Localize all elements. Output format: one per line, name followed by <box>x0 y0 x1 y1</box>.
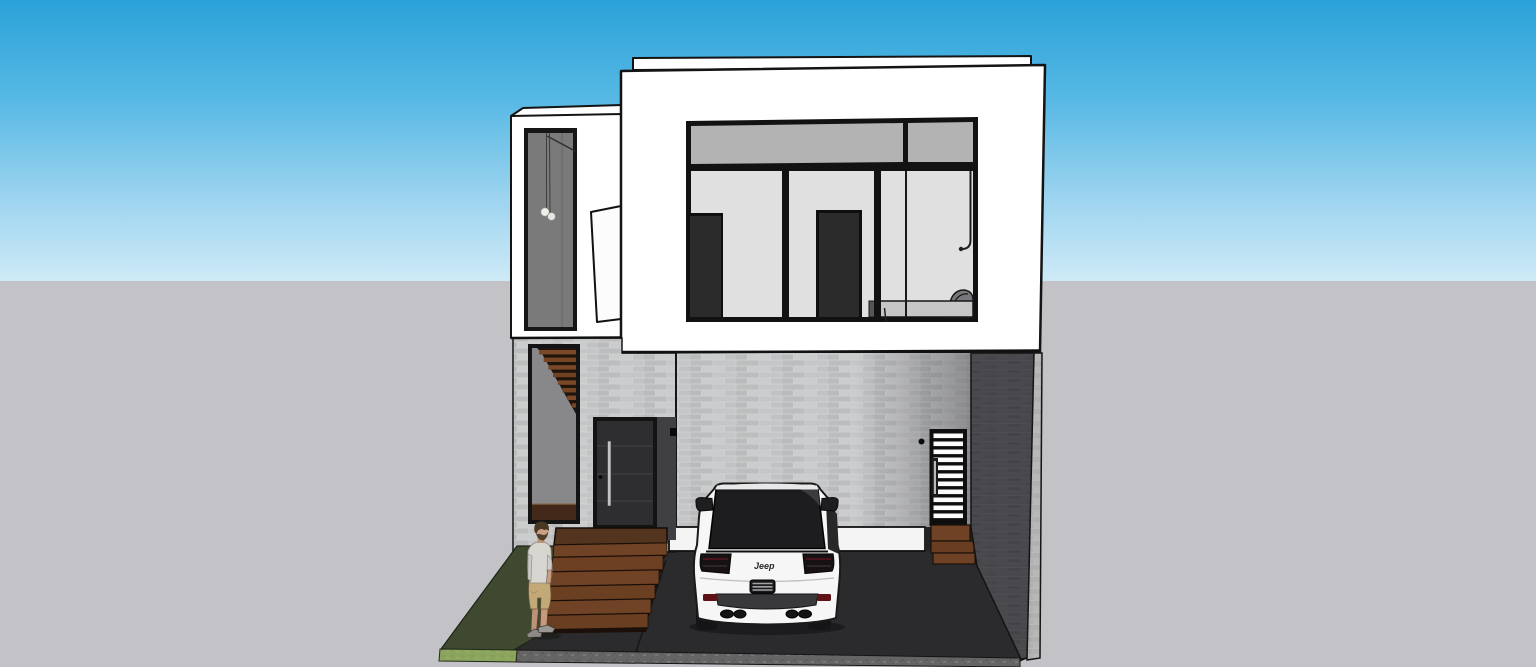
svg-text:Jeep: Jeep <box>754 561 775 571</box>
